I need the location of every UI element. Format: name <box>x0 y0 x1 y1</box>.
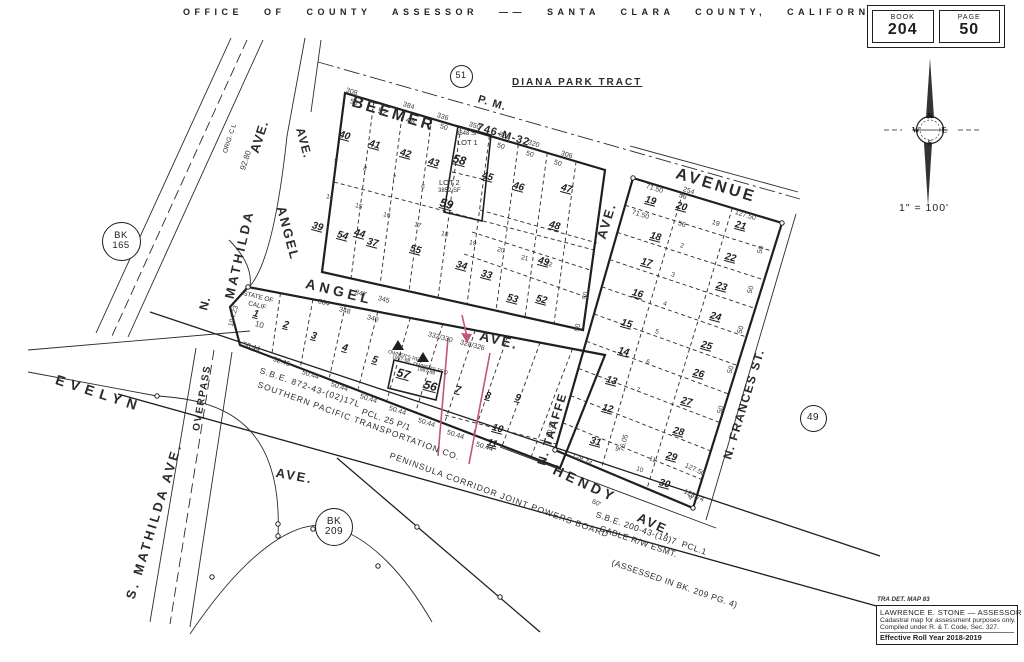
page-number: 50 <box>959 21 979 39</box>
tra-note: TRA DET. MAP 83 <box>877 596 930 603</box>
map-linework <box>0 0 1024 662</box>
compass-south-needle <box>924 143 932 206</box>
assessor-map-page: OFFICE OF COUNTY ASSESSOR —— SANTA CLARA… <box>0 0 1024 662</box>
mathilda-west-line <box>96 38 231 333</box>
street-label: DIANA PARK TRACT <box>512 78 642 88</box>
stamp-purpose: Cadastral map for assessment purposes on… <box>880 617 1014 624</box>
map-note-label: 3852 SF <box>438 188 461 194</box>
page-label: PAGE <box>958 14 981 21</box>
compass-letter-e: E <box>941 126 946 135</box>
ramp-curve-south-b <box>333 527 432 622</box>
page-box: PAGE 50 <box>939 10 1001 43</box>
compass-rose <box>884 58 980 206</box>
assessor-name: LAWRENCE E. STONE — ASSESSOR <box>880 608 1014 617</box>
map-note-label: LOT 2 <box>439 179 460 187</box>
compass-letter-s: S <box>928 139 932 148</box>
assessor-stamp: LAWRENCE E. STONE — ASSESSOR Cadastral m… <box>876 605 1018 645</box>
stamp-roll-year: Effective Roll Year 2018-2019 <box>880 632 1014 642</box>
street-label: N. <box>197 295 212 312</box>
compass-letter-w: W <box>912 126 920 135</box>
map-note-label: LOT 1 <box>457 139 478 147</box>
s-mathilda-east-line <box>190 352 232 627</box>
stamp-code: Compiled under R. & T. Code, Sec. 327. <box>880 624 1014 631</box>
book-page-box: BOOK 204 PAGE 50 <box>867 5 1005 48</box>
map-note-label: 3648 SF <box>456 131 479 137</box>
compass-north-needle <box>926 58 934 118</box>
map-scale: 1" = 100' <box>899 202 949 214</box>
page-title: OFFICE OF COUNTY ASSESSOR —— SANTA CLARA… <box>183 7 888 17</box>
angel-street-west-line <box>287 38 305 136</box>
map-reference-circle: BK165 <box>102 222 141 261</box>
book-label: BOOK <box>891 14 915 21</box>
angel-street-east-line <box>311 40 321 112</box>
book-box: BOOK 204 <box>872 10 934 43</box>
book-number: 204 <box>888 21 918 39</box>
compass-letter-n: N <box>927 112 933 121</box>
map-reference-circle: BK209 <box>315 508 353 546</box>
map-reference-circle: 51 <box>450 65 473 88</box>
map-reference-circle: 49 <box>800 405 827 432</box>
